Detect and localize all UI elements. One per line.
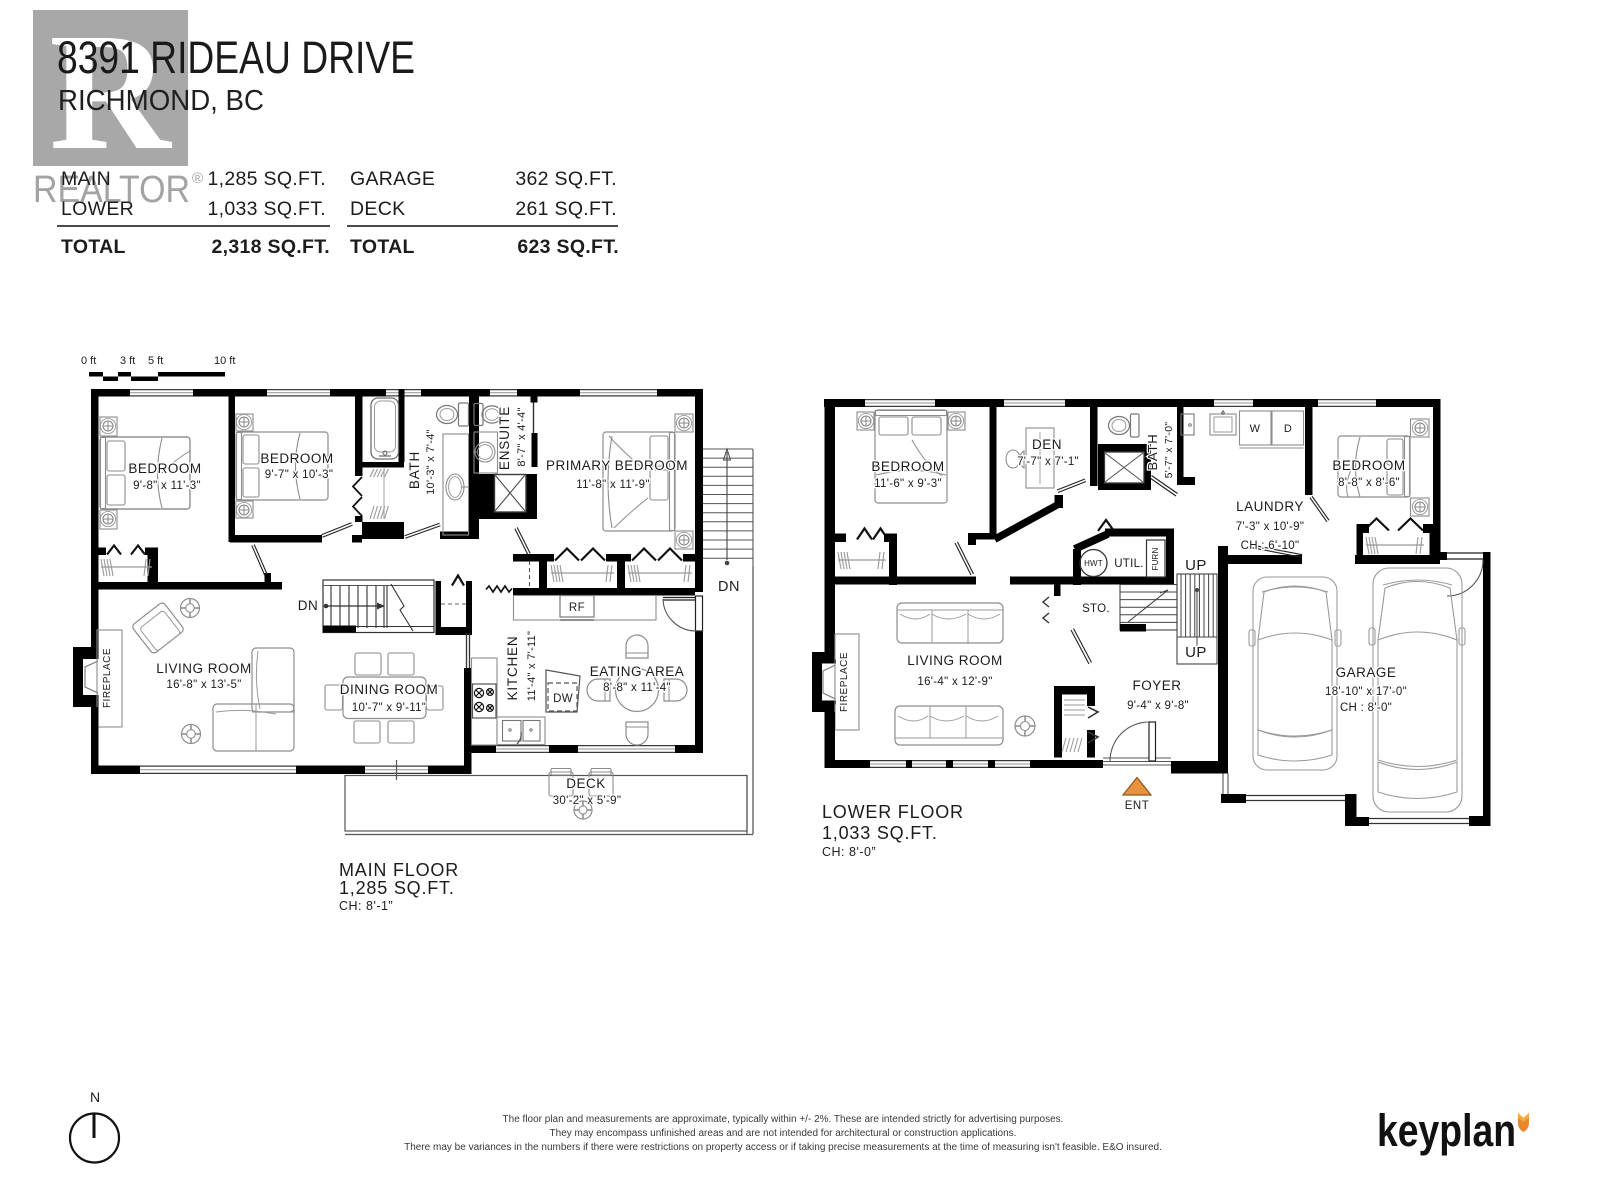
- svg-text:8391 RIDEAU DRIVE: 8391 RIDEAU DRIVE: [57, 32, 415, 83]
- svg-text:11'-6" x 9'-3": 11'-6" x 9'-3": [874, 478, 942, 490]
- svg-text:BEDROOM: BEDROOM: [260, 451, 333, 466]
- svg-text:10 ft: 10 ft: [214, 355, 235, 367]
- svg-text:DN: DN: [718, 579, 740, 595]
- svg-text:BATH: BATH: [1145, 434, 1160, 471]
- svg-text:LAUNDRY: LAUNDRY: [1236, 499, 1304, 514]
- svg-text:CH: 8'-0”: CH: 8'-0”: [822, 845, 876, 859]
- svg-text:261 SQ.FT.: 261 SQ.FT.: [515, 198, 617, 220]
- svg-text:9'-4" x 9'-8": 9'-4" x 9'-8": [1127, 700, 1189, 712]
- svg-text:5'-7" x 7'-0": 5'-7" x 7'-0": [1163, 422, 1175, 479]
- svg-text:®: ®: [192, 170, 203, 187]
- svg-text:0 ft: 0 ft: [81, 355, 96, 367]
- svg-text:GARAGE: GARAGE: [1336, 665, 1397, 680]
- svg-text:RF: RF: [569, 602, 585, 614]
- svg-text:362 SQ.FT.: 362 SQ.FT.: [515, 168, 617, 190]
- svg-text:BEDROOM: BEDROOM: [1332, 458, 1405, 473]
- svg-text:MAIN FLOOR: MAIN FLOOR: [339, 860, 459, 880]
- svg-text:DW: DW: [553, 693, 573, 705]
- svg-text:There may be variances in the: There may be variances in the numbers if…: [404, 1142, 1162, 1153]
- svg-text:TOTAL: TOTAL: [350, 236, 415, 258]
- svg-text:30'-2" x 5'-9": 30'-2" x 5'-9": [553, 795, 622, 807]
- svg-text:TOTAL: TOTAL: [61, 236, 126, 258]
- svg-text:1,285 SQ.FT.: 1,285 SQ.FT.: [339, 878, 455, 898]
- svg-text:DN: DN: [298, 598, 319, 613]
- svg-text:18'-10" x 17'-0": 18'-10" x 17'-0": [1325, 686, 1407, 698]
- svg-text:LIVING ROOM: LIVING ROOM: [156, 661, 252, 676]
- svg-text:2,318 SQ.FT.: 2,318 SQ.FT.: [212, 236, 331, 258]
- svg-text:FURN: FURN: [1151, 547, 1160, 570]
- svg-text:EATING AREA: EATING AREA: [590, 664, 685, 679]
- svg-text:9'-8" x 11'-3": 9'-8" x 11'-3": [133, 480, 201, 492]
- svg-text:LOWER FLOOR: LOWER FLOOR: [822, 802, 964, 822]
- svg-text:They may encompass unfinished: They may encompass unfinished areas and …: [550, 1128, 1017, 1139]
- svg-text:DINING ROOM: DINING ROOM: [340, 682, 439, 697]
- svg-text:W: W: [1250, 423, 1261, 435]
- svg-text:11'-4" x 7'-11": 11'-4" x 7'-11": [526, 631, 538, 702]
- svg-text:9'-7" x 10'-3": 9'-7" x 10'-3": [265, 469, 334, 481]
- svg-text:UTIL.: UTIL.: [1114, 558, 1144, 570]
- svg-text:DECK: DECK: [350, 198, 405, 220]
- svg-text:CH: 8'-1”: CH: 8'-1”: [339, 899, 393, 913]
- svg-text:7'-7" x 7'-1": 7'-7" x 7'-1": [1017, 456, 1079, 468]
- svg-text:FIREPLACE: FIREPLACE: [102, 648, 113, 708]
- svg-text:GARAGE: GARAGE: [350, 168, 435, 190]
- svg-text:UP: UP: [1185, 557, 1207, 574]
- svg-text:1,033 SQ.FT.: 1,033 SQ.FT.: [208, 198, 327, 220]
- svg-text:7'-3" x 10'-9": 7'-3" x 10'-9": [1236, 521, 1305, 533]
- svg-text:HWT: HWT: [1084, 559, 1103, 568]
- svg-text:8'-8" x 8'-6": 8'-8" x 8'-6": [1338, 477, 1400, 489]
- svg-text:LOWER: LOWER: [61, 198, 134, 220]
- svg-text:11'-8" x 11'-9": 11'-8" x 11'-9": [576, 479, 650, 491]
- svg-text:UP: UP: [1185, 644, 1207, 661]
- svg-text:BATH: BATH: [407, 451, 422, 489]
- svg-text:16'-8" x 13'-5": 16'-8" x 13'-5": [166, 679, 241, 691]
- svg-text:CH : 8'-0": CH : 8'-0": [1340, 702, 1392, 714]
- svg-text:10'-3" x 7'-4": 10'-3" x 7'-4": [425, 429, 437, 495]
- svg-text:1,285 SQ.FT.: 1,285 SQ.FT.: [208, 168, 327, 190]
- svg-text:ENSUITE: ENSUITE: [497, 406, 512, 470]
- svg-text:STO.: STO.: [1082, 603, 1110, 615]
- svg-text:623 SQ.FT.: 623 SQ.FT.: [517, 236, 619, 258]
- svg-text:DECK: DECK: [566, 776, 606, 791]
- svg-text:D: D: [1284, 423, 1292, 435]
- svg-text:BEDROOM: BEDROOM: [128, 461, 201, 476]
- svg-text:1,033 SQ.FT.: 1,033 SQ.FT.: [822, 823, 938, 843]
- svg-text:8'-8" x 11'-4": 8'-8" x 11'-4": [603, 682, 671, 694]
- svg-text:10'-7" x 9'-11": 10'-7" x 9'-11": [352, 702, 426, 714]
- svg-text:FOYER: FOYER: [1132, 678, 1181, 693]
- svg-text:8'-7" x 4'-4": 8'-7" x 4'-4": [516, 407, 528, 466]
- svg-text:RICHMOND, BC: RICHMOND, BC: [58, 85, 264, 117]
- svg-text:5 ft: 5 ft: [148, 355, 163, 367]
- svg-text:DEN: DEN: [1032, 437, 1062, 452]
- svg-text:MAIN: MAIN: [61, 168, 111, 190]
- svg-text:LIVING ROOM: LIVING ROOM: [907, 653, 1003, 668]
- svg-text:KITCHEN: KITCHEN: [505, 636, 520, 701]
- svg-text:PRIMARY BEDROOM: PRIMARY BEDROOM: [546, 458, 688, 473]
- svg-text:N: N: [90, 1089, 100, 1105]
- svg-text:3 ft: 3 ft: [120, 355, 135, 367]
- svg-text:keyplan: keyplan: [1377, 1105, 1516, 1156]
- svg-text:BEDROOM: BEDROOM: [871, 459, 944, 474]
- svg-text:ENT: ENT: [1125, 800, 1150, 812]
- svg-text:CH : 6'-10": CH : 6'-10": [1241, 540, 1300, 552]
- svg-text:FIREPLACE: FIREPLACE: [839, 652, 850, 712]
- svg-text:The floor plan and measurement: The floor plan and measurements are appr…: [503, 1114, 1064, 1125]
- svg-text:16'-4" x 12'-9": 16'-4" x 12'-9": [917, 676, 992, 688]
